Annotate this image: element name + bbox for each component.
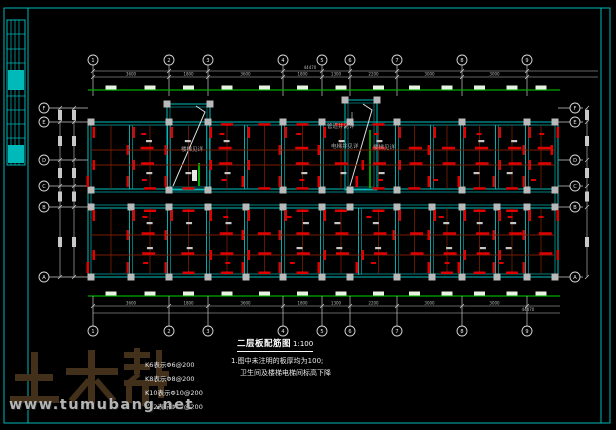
grid-bubble-left: F [43,106,46,112]
grid-bubble-bottom: 6 [348,329,351,335]
grid-bubble-left: D [42,158,46,164]
grid-bubble-top: 2 [167,58,170,64]
grid-bubble-left: C [42,184,46,190]
legend-item-1: K6表示Φ6@200 [145,358,203,372]
grid-bubble-right: B [573,205,577,211]
grid-bubble-bottom: 3 [206,329,209,335]
grid-bubble-right: F [574,106,577,112]
grid-bubble-left: B [42,205,46,211]
dim-segment-bottom: 3600 [240,301,251,306]
watermark-url: www.tumubang.net [9,397,194,413]
grid-bubble-right: E [573,120,576,126]
dim-segment-top: 3000 [489,72,500,77]
grid-bubble-top: 4 [281,58,284,64]
grid-bubble-right: D [573,158,577,164]
dim-segment-bottom: 3000 [489,301,500,306]
cad-sheet: 4447012345678936001800360018001300220030… [0,0,616,430]
legend-item-2: K8表示Φ8@200 [145,372,203,386]
grid-bubble-bottom: 1 [91,329,94,335]
dim-segment-top: 1300 [331,72,342,77]
label-elevator-shaft: 电梯井见详 [331,142,359,150]
label-stair-left: 楼梯见详 [181,145,204,153]
label-pipe-shaft: 管道井见详 [327,122,355,130]
grid-bubble-right: A [573,275,577,281]
grid-bubble-right: C [573,184,577,190]
dim-segment-top: 3600 [126,72,137,77]
dim-segment-bottom: 3600 [126,301,137,306]
grid-bubble-top: 6 [348,58,351,64]
grid-bubble-left: A [42,275,46,281]
grid-bubble-left: E [42,120,45,126]
grid-bubble-top: 9 [525,58,528,64]
dim-segment-bottom: 1800 [183,301,194,306]
note-line-2: 卫生间及楼梯电梯间标高下降 [240,368,331,378]
dim-segment-top: 3000 [424,72,435,77]
grid-bubble-bottom: 9 [525,329,528,335]
dim-segment-bottom: 2200 [368,301,379,306]
grid-bubble-top: 8 [460,58,463,64]
dim-overall-bottom: 44470 [522,307,535,312]
dim-segment-top: 3600 [240,72,251,77]
dim-segment-top: 1800 [183,72,194,77]
grid-bubble-bottom: 2 [167,329,170,335]
dim-segment-top: 2200 [368,72,379,77]
note-line-1: 1.图中未注明的板厚均为100; [231,356,323,366]
dim-segment-bottom: 1300 [331,301,342,306]
drawing-title: 二层板配筋图1:100 [237,331,313,352]
grid-bubble-bottom: 5 [320,329,323,335]
grid-bubble-top: 1 [91,58,94,64]
grid-bubble-top: 3 [206,58,209,64]
drawing-scale: 1:100 [293,340,313,348]
dim-segment-bottom: 3000 [424,301,435,306]
label-stair-right: 楼梯见详 [373,143,396,151]
drawing-title-text: 二层板配筋图 [237,339,291,349]
grid-bubble-bottom: 8 [460,329,463,335]
grid-bubble-bottom: 7 [395,329,398,335]
dim-overall-top: 44470 [304,65,317,70]
dim-segment-top: 1800 [297,72,308,77]
grid-bubble-top: 5 [320,58,323,64]
dim-segment-bottom: 1800 [297,301,308,306]
grid-bubble-top: 7 [395,58,398,64]
